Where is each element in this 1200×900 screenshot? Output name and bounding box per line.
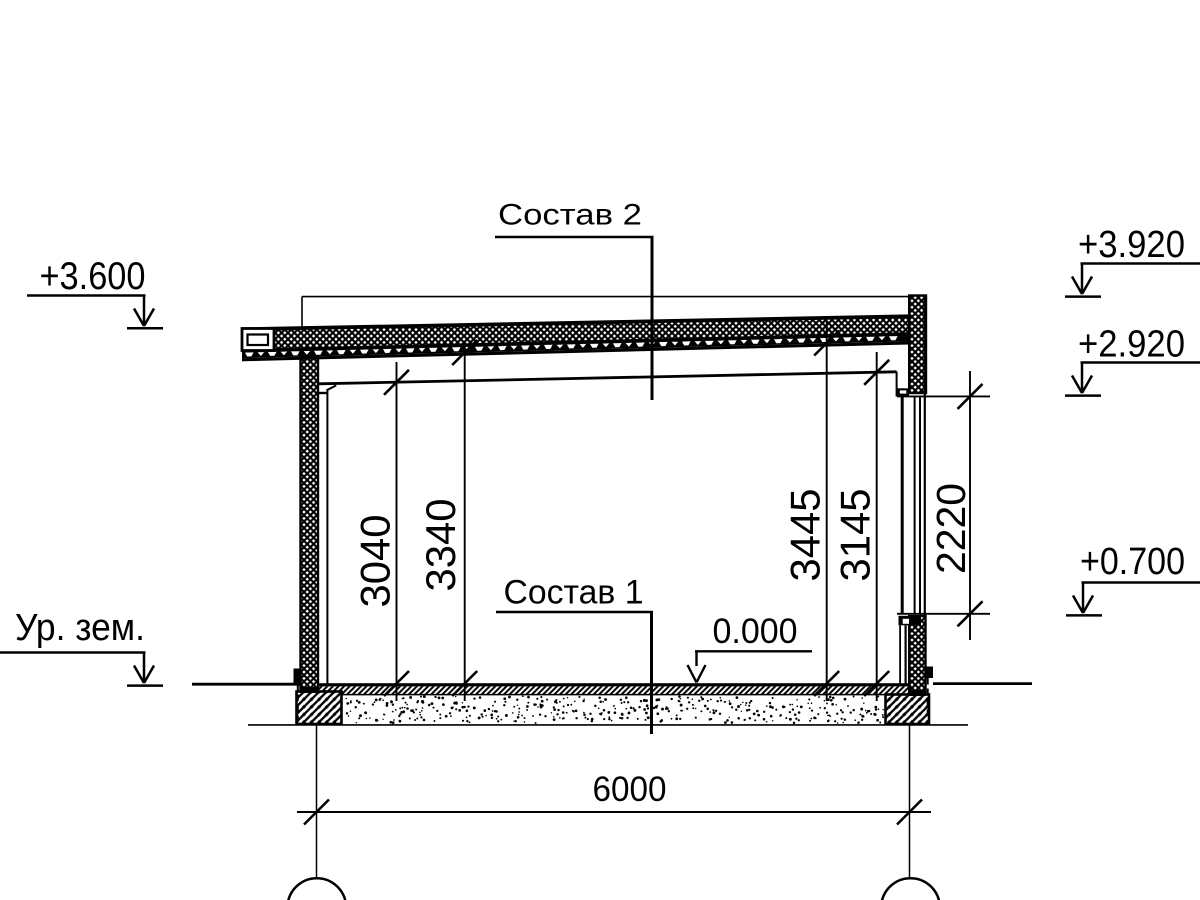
svg-text:Состав 2: Состав 2 — [498, 199, 642, 232]
svg-text:3040: 3040 — [352, 515, 399, 608]
svg-text:+0.700: +0.700 — [1080, 541, 1185, 583]
svg-text:+3.920: +3.920 — [1078, 224, 1185, 266]
svg-text:6000: 6000 — [593, 770, 667, 809]
svg-text:Состав 1: Состав 1 — [504, 574, 644, 612]
svg-text:Ур. зем.: Ур. зем. — [15, 607, 145, 649]
svg-text:2220: 2220 — [928, 483, 974, 574]
svg-text:+2.920: +2.920 — [1078, 324, 1185, 366]
svg-text:0.000: 0.000 — [713, 612, 798, 651]
svg-text:3340: 3340 — [417, 499, 464, 592]
svg-text:3445: 3445 — [782, 489, 829, 582]
svg-text:+3.600: +3.600 — [40, 255, 146, 298]
svg-text:3145: 3145 — [832, 489, 879, 582]
